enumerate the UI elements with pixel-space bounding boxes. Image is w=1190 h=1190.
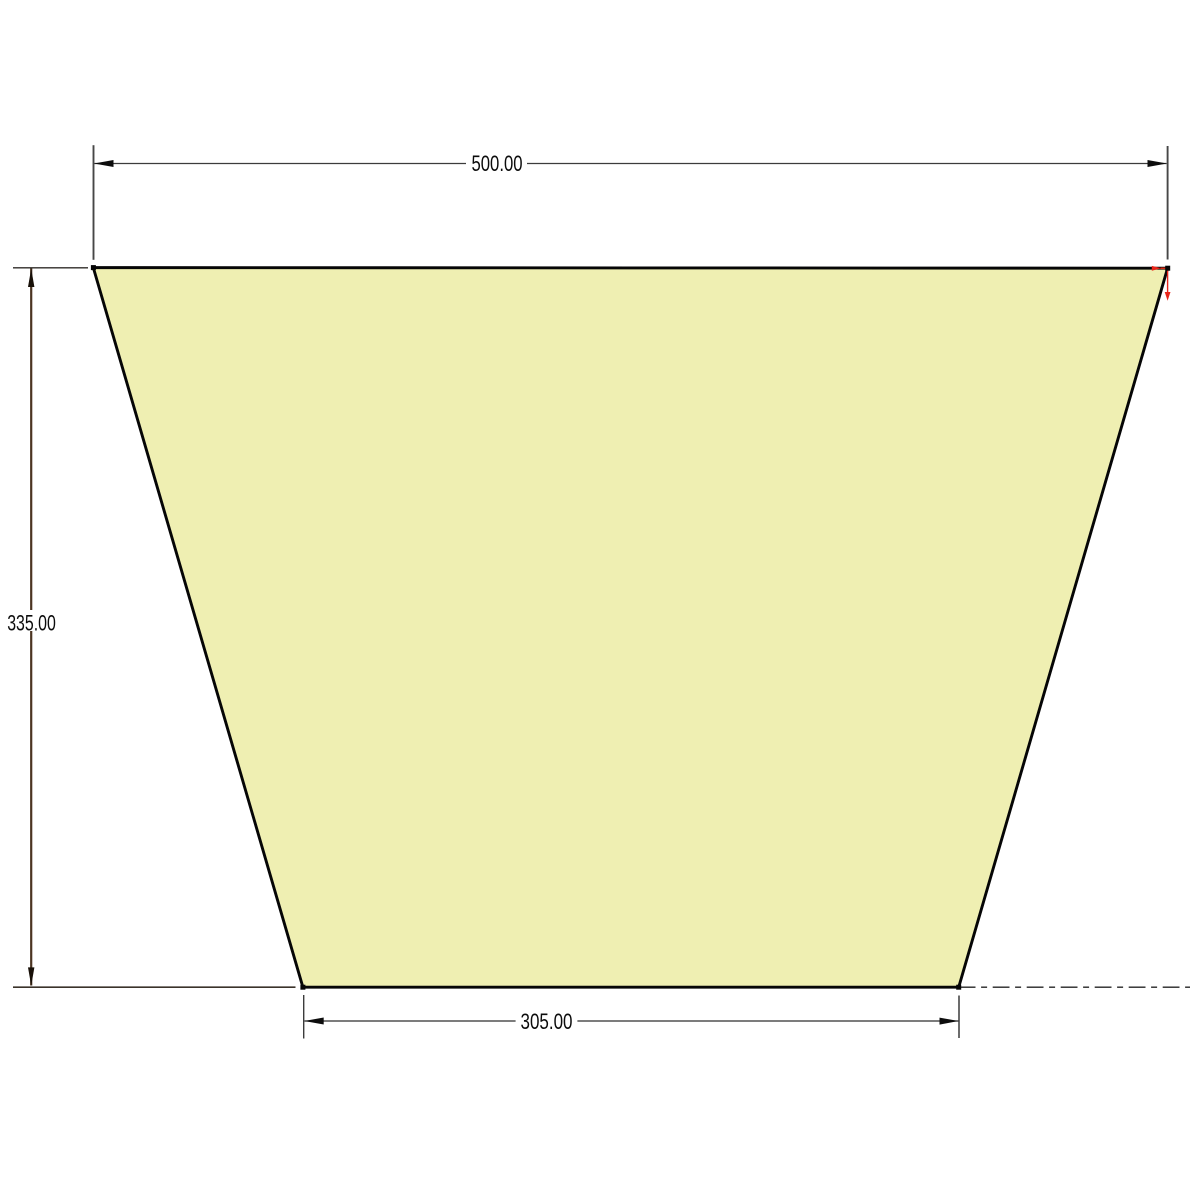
svg-text:305.00: 305.00 xyxy=(521,1009,573,1034)
svg-text:500.00: 500.00 xyxy=(472,151,523,176)
svg-text:335.00: 335.00 xyxy=(7,610,56,635)
